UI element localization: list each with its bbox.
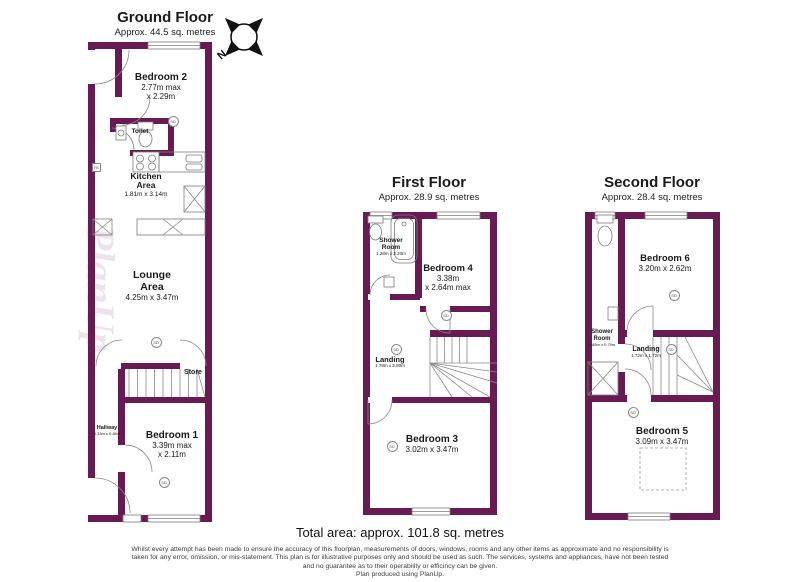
compass-icon: N xyxy=(216,8,276,68)
second-door-gaps xyxy=(627,330,653,402)
first-floor-title: First Floor xyxy=(392,175,466,191)
room-label-second-landing: Landing 1.72m x 1.72m xyxy=(631,346,661,358)
room-label-first-landing: Landing 1.79m x 2.80m xyxy=(375,356,405,368)
room-label-hallway: Hallway 4.33m x 0.86m xyxy=(94,425,120,436)
smoke-detector-icon: SD xyxy=(159,477,170,488)
smoke-detector-icon: SD xyxy=(168,116,179,127)
room-label-store: Store xyxy=(184,369,202,376)
room-label-bedroom6: Bedroom 6 3.20m x 2.62m xyxy=(639,253,692,273)
first-floor-area: Approx. 28.9 sq. metres xyxy=(379,192,480,203)
floorplan-page: PlanUp Ground Floor Approx. 44.5 sq. met… xyxy=(0,0,800,582)
smoke-detector-icon: SD xyxy=(391,344,402,355)
smoke-detector-icon: SD xyxy=(441,310,452,321)
room-label-kitchen: Kitchen Area 1.81m x 3.14m xyxy=(125,172,168,199)
room-label-bedroom5: Bedroom 5 3.09m x 3.47m xyxy=(636,426,689,446)
second-bathroom-fixtures-icon xyxy=(588,215,618,395)
second-stairs xyxy=(653,337,713,395)
disclaimer-line-3: and no guarantee as to their operability… xyxy=(303,563,497,571)
smoke-detector-icon: SD xyxy=(151,337,162,348)
room-label-second-shower: Shower Room 1.85m x 0.79m xyxy=(585,329,619,347)
first-stairs xyxy=(430,337,497,397)
room-label-bedroom3: Bedroom 3 3.02m x 3.47m xyxy=(406,434,459,454)
second-floor-area: Approx. 28.4 sq. metres xyxy=(602,192,703,203)
disclaimer-line-1: Whilst every attempt has been made to en… xyxy=(131,546,668,554)
smoke-detector-icon: SD xyxy=(387,441,398,452)
ground-floor-title: Ground Floor xyxy=(117,10,213,26)
smoke-detector-icon: SD xyxy=(628,407,639,418)
second-floor-title: Second Floor xyxy=(604,175,700,191)
reduced-headroom-outline xyxy=(640,448,686,490)
smoke-detector-icon: SD xyxy=(669,290,680,301)
room-label-first-shower: Shower Room 1.28m x 2.20m xyxy=(374,237,408,256)
room-label-bedroom2: Bedroom 2 2.77m max x 2.29m xyxy=(135,72,187,101)
total-area-text: Total area: approx. 101.8 sq. metres xyxy=(296,526,504,540)
compass-north-label: N xyxy=(216,48,229,62)
room-label-lounge: Lounge Area 4.25m x 3.47m xyxy=(126,270,179,302)
produced-by-text: Plan produced using PlanUp. xyxy=(356,571,444,579)
first-door-gaps xyxy=(368,294,450,403)
room-label-bedroom4: Bedroom 4 3.38m x 2.64m max xyxy=(423,263,473,292)
smoke-detector-icon: SD xyxy=(666,344,677,355)
ground-floor-area: Approx. 44.5 sq. metres xyxy=(115,27,216,38)
room-label-bedroom1: Bedroom 1 3.39m max x 2.11m xyxy=(146,430,198,459)
fuse-box-icon: FB xyxy=(92,163,101,172)
room-label-toilet: Toilet xyxy=(132,128,149,135)
disclaimer-line-2: taken for any error, omission, or mis-st… xyxy=(132,554,669,562)
